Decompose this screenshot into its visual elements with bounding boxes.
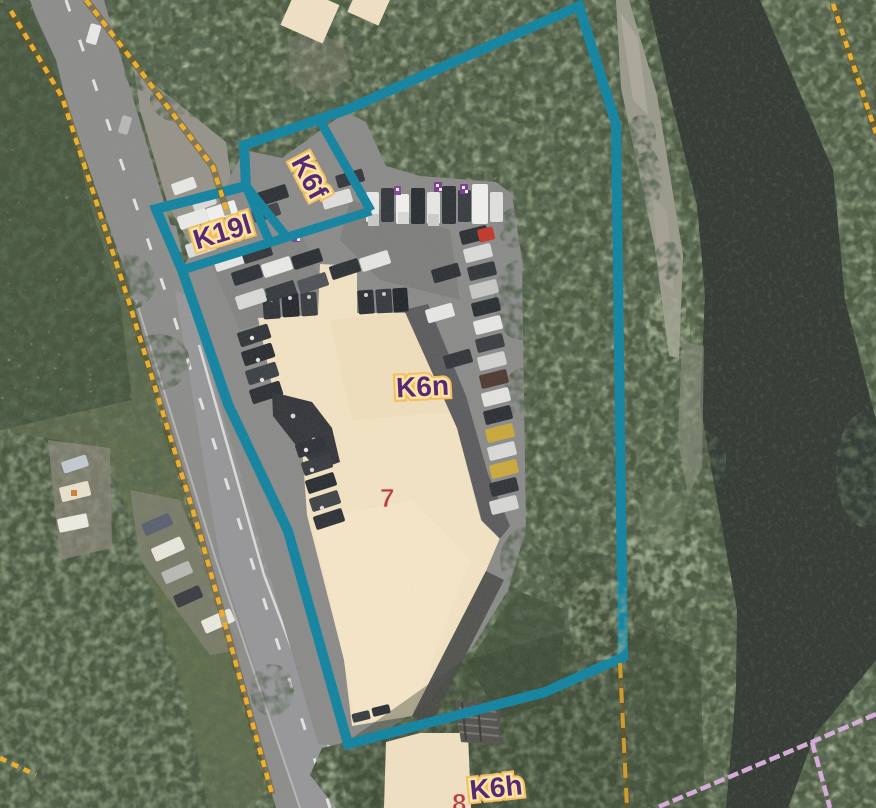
svg-text:K6n: K6n [395,370,449,404]
svg-text:K6h: K6h [468,769,524,805]
svg-text:7: 7 [380,483,394,513]
svg-text:8: 8 [452,788,466,808]
